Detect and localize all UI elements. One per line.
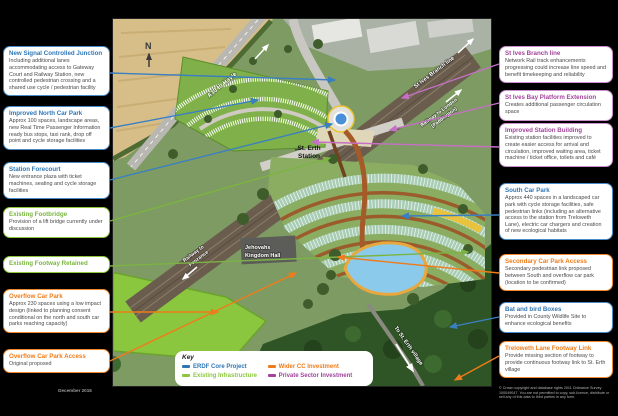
- key-item-wider-cc: Wider CC Investment: [268, 362, 366, 371]
- aerial-site-plan: N A30 to Hayle St Ives Branch line Railw…: [112, 18, 492, 387]
- key-label: Wider CC Investment: [279, 364, 339, 370]
- callout-body: Network Rail track enhancements progress…: [505, 58, 607, 78]
- key-item-private: Private Sector Investment: [268, 371, 366, 380]
- site-plan-svg: N A30 to Hayle St Ives Branch line Railw…: [113, 19, 491, 386]
- callout-body: Original proposed: [9, 361, 104, 368]
- callout-existing-footbridge: Existing Footbridge Provision of a lift …: [3, 207, 110, 238]
- callout-title: New Signal Controlled Junction: [9, 50, 104, 57]
- callout-body: Provision of a lift bridge currently und…: [9, 219, 104, 232]
- key-item-erdf: ERDF Core Project: [182, 362, 268, 371]
- svg-text:Station: Station: [298, 153, 320, 160]
- wider-cc-dash-icon: [268, 365, 276, 368]
- callout-treloweth-lane-footway-link: Treloweth Lane Footway Link Provide miss…: [499, 341, 613, 378]
- station-forecourt-roundabout: [328, 106, 354, 132]
- callout-st-ives-bay-platform-extension: St Ives Bay Platform Extension Creates a…: [499, 90, 613, 121]
- erdf-dash-icon: [182, 365, 190, 368]
- callout-title: Bat and bird Boxes: [505, 306, 607, 313]
- callout-new-signal-controlled-junction: New Signal Controlled Junction Including…: [3, 46, 110, 96]
- callout-overflow-car-park-access: Overflow Car Park Access Original propos…: [3, 349, 110, 373]
- svg-text:Jehovahs: Jehovahs: [245, 245, 270, 251]
- station-label: St. Erth Station: [297, 145, 320, 160]
- callout-body: Including additional lanes accommodating…: [9, 58, 104, 91]
- callout-body: Approx 100 spaces, landscape areas, new …: [9, 118, 104, 144]
- callout-title: Existing Footway Retained: [9, 260, 104, 267]
- callout-title: Treloweth Lane Footway Link: [505, 345, 607, 352]
- callout-bat-and-bird-boxes: Bat and bird Boxes Provided in County Wi…: [499, 302, 613, 333]
- callout-body: Provided in County Wildlife Site to enha…: [505, 314, 607, 327]
- callout-title: Overflow Car Park: [9, 293, 104, 300]
- callout-title: Improved Station Building: [505, 127, 607, 134]
- callout-secondary-car-park-access: Secondary Car Park Access Secondary pede…: [499, 254, 613, 291]
- callout-title: Overflow Car Park Access: [9, 353, 104, 360]
- callout-body: Existing station facilities improved to …: [505, 135, 607, 161]
- svg-text:Kingdom Hall: Kingdom Hall: [245, 253, 281, 259]
- private-dash-icon: [268, 374, 276, 377]
- callout-body: New entrance plaza with ticket machines,…: [9, 174, 104, 194]
- callout-body: Approx 440 spaces in a landscaped car pa…: [505, 195, 607, 235]
- existing-dash-icon: [182, 374, 190, 377]
- callout-title: Station Forecourt: [9, 166, 104, 173]
- callout-title: Secondary Car Park Access: [505, 258, 607, 265]
- callout-body: Secondary pedestrian link proposed betwe…: [505, 266, 607, 286]
- callout-body: Approx 230 spaces using a low impact des…: [9, 301, 104, 327]
- callout-title: St Ives Bay Platform Extension: [505, 94, 607, 101]
- key-title: Key: [182, 354, 366, 361]
- date-label: December 2016: [38, 388, 112, 393]
- callout-body: Creates additional passenger circulation…: [505, 102, 607, 115]
- callout-title: South Car Park: [505, 187, 607, 194]
- callout-body: Provide missing section of footway to pr…: [505, 353, 607, 373]
- callout-title: Existing Footbridge: [9, 211, 104, 218]
- callout-south-car-park: South Car Park Approx 440 spaces in a la…: [499, 183, 613, 240]
- key-label: ERDF Core Project: [193, 364, 247, 370]
- callout-station-forecourt: Station Forecourt New entrance plaza wit…: [3, 162, 110, 199]
- key-label: Private Sector Investment: [279, 373, 353, 379]
- map-key: Key ERDF Core Project Wider CC Investmen…: [175, 351, 373, 386]
- svg-text:N: N: [145, 41, 152, 51]
- callout-existing-footway-retained: Existing Footway Retained: [3, 256, 110, 273]
- key-label: Existing Infrastructure: [193, 373, 257, 379]
- callout-overflow-car-park: Overflow Car Park Approx 230 spaces usin…: [3, 289, 110, 333]
- st-erth-station-plan: N A30 to Hayle St Ives Branch line Railw…: [0, 0, 618, 416]
- pond: [345, 243, 426, 294]
- callout-title: St Ives Branch line: [505, 50, 607, 57]
- callout-st-ives-branch-line: St Ives Branch line Network Rail track e…: [499, 46, 613, 83]
- callout-title: Improved North Car Park: [9, 110, 104, 117]
- svg-text:St. Erth: St. Erth: [297, 145, 320, 152]
- callout-improved-north-car-park: Improved North Car Park Approx 100 space…: [3, 106, 110, 150]
- callout-improved-station-building: Improved Station Building Existing stati…: [499, 123, 613, 167]
- copyright-notice: © Crown copyright and database rights 20…: [499, 386, 615, 400]
- key-item-existing: Existing Infrastructure: [182, 371, 268, 380]
